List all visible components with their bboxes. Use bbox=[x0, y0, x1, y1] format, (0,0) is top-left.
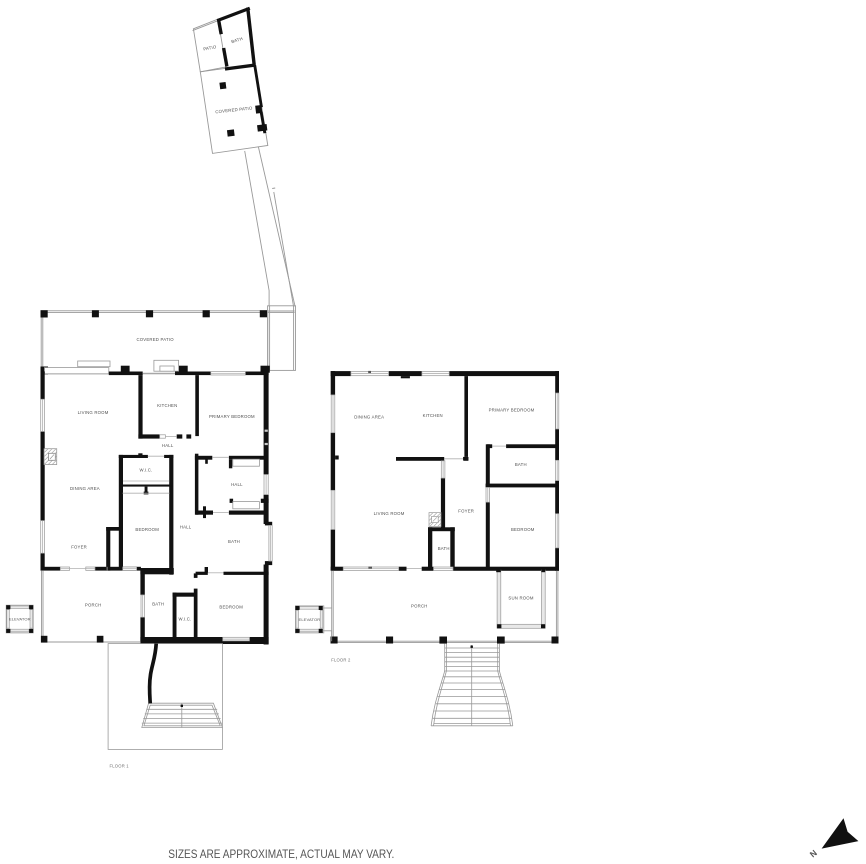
svg-text:FLOOR 1: FLOOR 1 bbox=[110, 764, 130, 769]
svg-text:FOYER: FOYER bbox=[71, 545, 87, 550]
svg-text:ELEVATOR: ELEVATOR bbox=[299, 617, 321, 622]
svg-text:PRIMARY BEDROOM: PRIMARY BEDROOM bbox=[489, 408, 535, 413]
svg-text:BEDROOM: BEDROOM bbox=[219, 605, 243, 610]
svg-text:W.I.C.: W.I.C. bbox=[140, 467, 153, 472]
svg-text:HALL: HALL bbox=[231, 482, 243, 487]
svg-text:ELEVATOR: ELEVATOR bbox=[9, 616, 31, 621]
svg-text:W.I.C.: W.I.C. bbox=[179, 616, 192, 621]
svg-text:HALL: HALL bbox=[162, 443, 174, 448]
svg-text:BATH: BATH bbox=[228, 539, 240, 544]
svg-text:BATH: BATH bbox=[438, 546, 450, 551]
svg-text:LIVING ROOM: LIVING ROOM bbox=[78, 410, 109, 415]
svg-text:BATH: BATH bbox=[515, 462, 527, 467]
svg-text:SIZES ARE APPROXIMATE, ACTUAL: SIZES ARE APPROXIMATE, ACTUAL MAY VARY. bbox=[168, 848, 394, 861]
svg-text:PRIMARY BEDROOM: PRIMARY BEDROOM bbox=[209, 414, 255, 419]
svg-text:PORCH: PORCH bbox=[411, 603, 428, 608]
svg-text:SUN ROOM: SUN ROOM bbox=[508, 596, 533, 601]
svg-text:FOYER: FOYER bbox=[458, 509, 474, 514]
svg-text:BEDROOM: BEDROOM bbox=[511, 527, 535, 532]
svg-text:DINING AREA: DINING AREA bbox=[70, 486, 100, 491]
svg-text:BATH: BATH bbox=[152, 602, 164, 607]
svg-text:DINING AREA: DINING AREA bbox=[354, 414, 384, 419]
svg-text:KITCHEN: KITCHEN bbox=[423, 413, 443, 418]
svg-text:COVERED PATIO: COVERED PATIO bbox=[136, 337, 174, 342]
svg-text:LIVING ROOM: LIVING ROOM bbox=[374, 511, 405, 516]
svg-text:PORCH: PORCH bbox=[85, 603, 102, 608]
svg-text:FLOOR 2: FLOOR 2 bbox=[331, 657, 351, 662]
svg-text:BEDROOM: BEDROOM bbox=[135, 527, 159, 532]
svg-text:KITCHEN: KITCHEN bbox=[157, 403, 177, 408]
svg-text:HALL: HALL bbox=[180, 525, 192, 530]
